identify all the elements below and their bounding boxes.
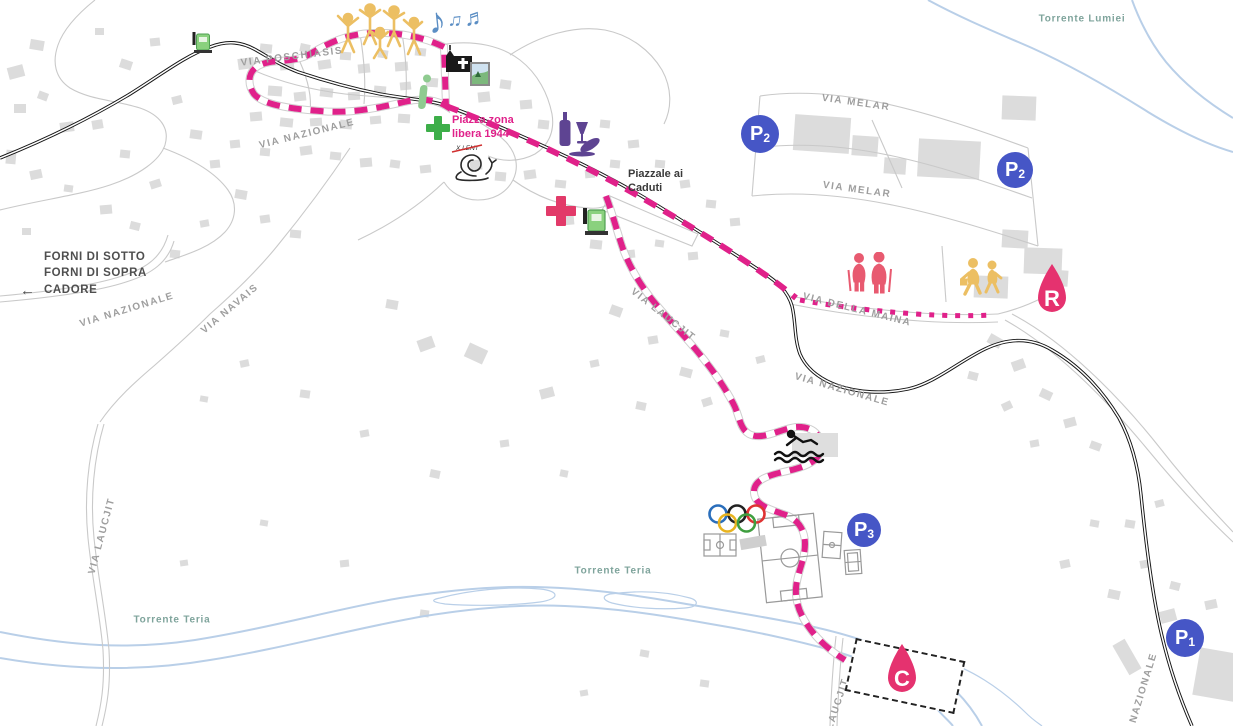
piazza-line1: Piazza zona	[452, 114, 514, 128]
buildings-layer	[5, 28, 1233, 705]
wine-food-icon	[548, 112, 602, 160]
music-note-2: ♫	[447, 9, 464, 33]
fuel-pump-icon	[582, 202, 610, 238]
tennis-court-icon	[844, 549, 862, 574]
parking-letter: P	[1005, 159, 1018, 182]
piazzale-line2: Caduti	[628, 182, 683, 196]
parking-number: 1	[1188, 636, 1195, 648]
camper-marker-c: C	[882, 642, 922, 700]
music-note-3: ♬	[463, 3, 488, 32]
pharmacy-cross-icon	[426, 116, 450, 140]
camper-letter: C	[894, 666, 910, 691]
event-map: VIA POSCHIASIS VIA NAZIONALE VIA NAZIONA…	[0, 0, 1233, 726]
parking-letter: P	[750, 123, 763, 146]
parking-marker-p2-west: P2	[741, 115, 779, 153]
children-icon	[960, 256, 1006, 298]
parking-marker-p3: P3	[847, 513, 881, 547]
parking-number: 2	[763, 132, 770, 144]
music-note-1: ♪	[426, 0, 448, 43]
dancing-people-icon	[336, 2, 426, 60]
first-aid-cross-icon	[546, 196, 576, 226]
parking-number: 3	[867, 528, 874, 540]
olympic-rings-icon	[708, 504, 768, 538]
river-label-teria-west: Torrente Teria	[134, 615, 211, 626]
direction-line-3: CADORE	[44, 283, 97, 299]
river-label-lumiei: Torrente Lumiei	[1039, 14, 1126, 25]
elderly-couple-icon	[846, 252, 894, 294]
refreshment-letter: R	[1044, 286, 1060, 311]
parking-marker-p2-east: P2	[997, 152, 1033, 188]
river-label-teria-mid: Torrente Teria	[575, 566, 652, 577]
left-arrow-icon: ←	[20, 281, 42, 301]
painting-icon	[470, 62, 490, 86]
small-court-icon	[822, 531, 842, 558]
parking-letter: P	[1175, 627, 1188, 650]
fuel-pump-icon-small	[192, 28, 214, 56]
piazzale-line1: Piazzale ai	[628, 168, 683, 182]
parking-marker-p1: P1	[1166, 619, 1204, 657]
refreshment-marker-r: R	[1032, 262, 1072, 320]
direction-sign: FORNI DI SOTTO FORNI DI SOPRA ← CADORE	[44, 250, 147, 301]
direction-line-2: FORNI DI SOPRA	[44, 266, 147, 282]
piazza-zona-libera-label: Piazza zona libera 1944	[452, 114, 514, 142]
parking-letter: P	[854, 519, 867, 542]
parking-number: 2	[1018, 168, 1025, 180]
info-point-icon	[416, 74, 434, 110]
swimmer-icon	[770, 428, 840, 468]
piazzale-ai-caduti-label: Piazzale ai Caduti	[628, 168, 683, 196]
direction-line-1: FORNI DI SOTTO	[44, 250, 147, 266]
snail-slow-zone-icon: X LENT	[450, 140, 500, 184]
music-notes-icon: ♪ ♫ ♬	[428, 0, 487, 42]
